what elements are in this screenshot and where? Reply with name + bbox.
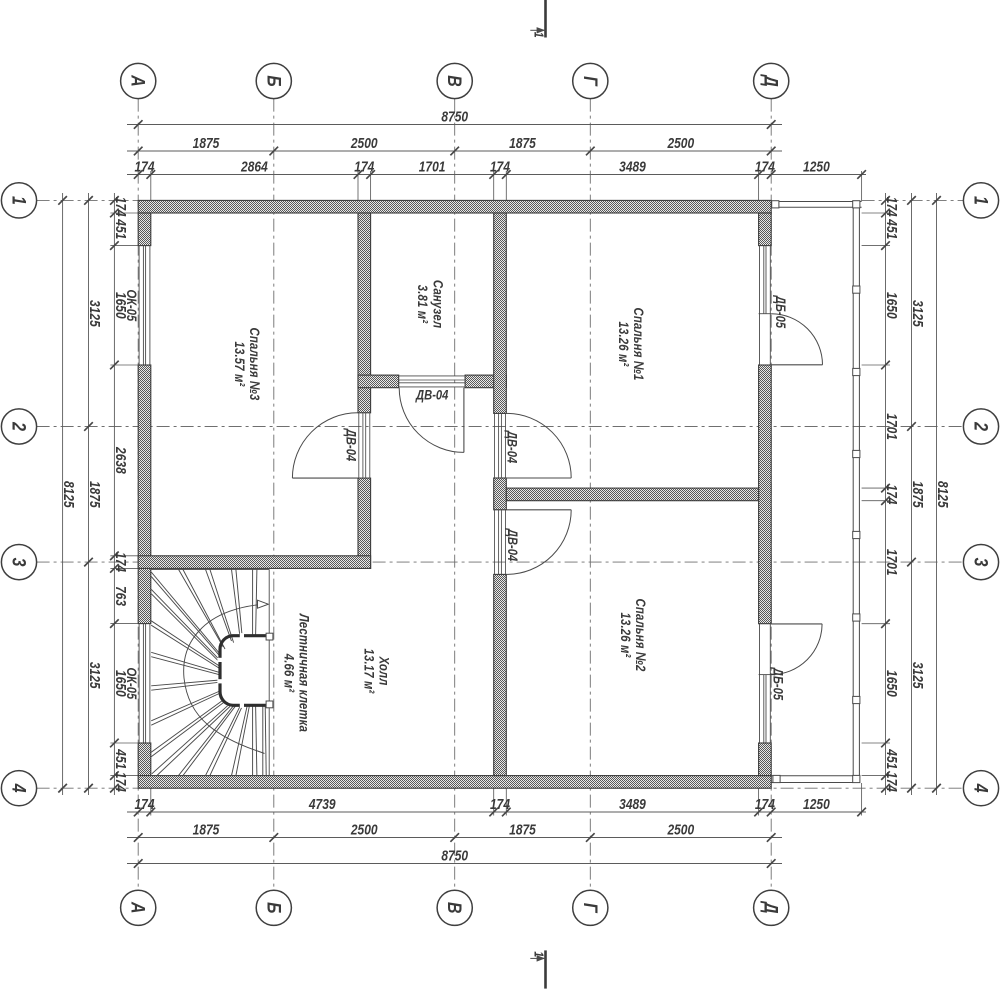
svg-text:3489: 3489 [619,796,646,813]
svg-text:1875: 1875 [509,821,536,838]
svg-text:174: 174 [490,158,510,175]
svg-text:3: 3 [8,558,30,567]
svg-text:2500: 2500 [667,135,695,152]
svg-text:ДБ-05: ДБ-05 [770,667,785,701]
svg-text:3125: 3125 [910,662,927,689]
svg-text:451: 451 [113,748,130,769]
svg-text:4.66 м²: 4.66 м² [281,653,298,693]
svg-text:2638: 2638 [113,446,130,474]
svg-text:Холл: Холл [376,656,393,686]
svg-text:1650: 1650 [884,292,901,319]
svg-text:Спальня №3: Спальня №3 [247,328,264,401]
svg-text:1: 1 [8,196,30,205]
svg-text:Д: Д [760,73,782,87]
svg-text:1701: 1701 [884,549,901,576]
svg-text:174: 174 [354,158,374,175]
svg-text:ДБ-05: ДБ-05 [772,295,787,329]
svg-text:174: 174 [755,158,775,175]
svg-text:451: 451 [884,218,901,239]
svg-text:4739: 4739 [308,796,336,813]
svg-text:763: 763 [113,586,130,606]
svg-text:В: В [444,902,466,914]
svg-text:Б: Б [263,902,285,913]
svg-text:3.81 м²: 3.81 м² [415,285,432,324]
svg-text:2: 2 [8,421,30,431]
svg-text:3: 3 [970,558,992,567]
svg-text:ДВ-04: ДВ-04 [504,430,519,463]
svg-text:1875: 1875 [509,135,536,152]
svg-text:1875: 1875 [193,135,220,152]
svg-text:1701: 1701 [419,158,446,175]
svg-text:ОК-05: ОК-05 [124,289,139,322]
svg-text:В: В [444,75,466,87]
svg-text:1701: 1701 [884,413,901,440]
svg-text:174: 174 [113,197,130,217]
svg-text:13.26 м²: 13.26 м² [618,612,635,657]
svg-text:ОК-05: ОК-05 [124,667,139,700]
svg-text:1250: 1250 [803,796,830,813]
svg-text:174: 174 [113,772,130,792]
svg-text:13.57 м²: 13.57 м² [232,341,249,386]
svg-text:А: А [127,901,149,913]
svg-text:Д: Д [760,900,782,914]
svg-text:3125: 3125 [87,300,104,327]
svg-text:174: 174 [884,484,901,504]
svg-text:ДВ-04: ДВ-04 [504,528,519,561]
svg-text:174: 174 [490,796,510,813]
svg-text:2864: 2864 [240,158,268,175]
svg-text:2500: 2500 [667,821,695,838]
svg-text:174: 174 [134,796,154,813]
svg-text:1875: 1875 [910,481,927,508]
svg-text:3125: 3125 [910,300,927,327]
svg-text:1: 1 [970,196,992,205]
svg-text:Г: Г [579,903,601,914]
svg-text:Спальня №1: Спальня №1 [631,308,648,381]
svg-text:8125: 8125 [935,481,952,508]
svg-text:1: 1 [531,32,545,38]
svg-text:2500: 2500 [350,135,378,152]
svg-text:1875: 1875 [193,821,220,838]
svg-text:А: А [127,74,149,86]
svg-text:1: 1 [531,951,545,957]
svg-text:174: 174 [134,158,154,175]
svg-text:174: 174 [884,197,901,217]
svg-text:3489: 3489 [619,158,646,175]
svg-text:174: 174 [884,772,901,792]
svg-text:4: 4 [970,783,992,793]
svg-text:1650: 1650 [884,670,901,697]
svg-text:8125: 8125 [61,481,78,508]
svg-text:ДВ-04: ДВ-04 [415,387,448,402]
svg-text:451: 451 [113,218,130,239]
svg-text:4: 4 [8,783,30,793]
svg-text:1875: 1875 [87,481,104,508]
svg-text:2500: 2500 [350,821,378,838]
svg-text:1250: 1250 [803,158,830,175]
svg-text:451: 451 [884,748,901,769]
svg-text:Спальня №2: Спальня №2 [633,599,650,673]
svg-text:Санузел: Санузел [430,280,447,328]
svg-text:2: 2 [970,421,992,431]
svg-text:Лестничная клетка: Лестничная клетка [296,613,313,732]
svg-text:Б: Б [263,75,285,86]
svg-text:174: 174 [113,552,130,572]
svg-text:13.17 м²: 13.17 м² [361,648,378,693]
svg-text:3125: 3125 [87,662,104,689]
svg-text:Г: Г [579,76,601,87]
svg-text:13.26 м²: 13.26 м² [616,321,633,366]
svg-text:8750: 8750 [441,847,468,864]
svg-text:174: 174 [755,796,775,813]
svg-text:8750: 8750 [441,108,468,125]
svg-text:ДВ-04: ДВ-04 [343,428,358,461]
